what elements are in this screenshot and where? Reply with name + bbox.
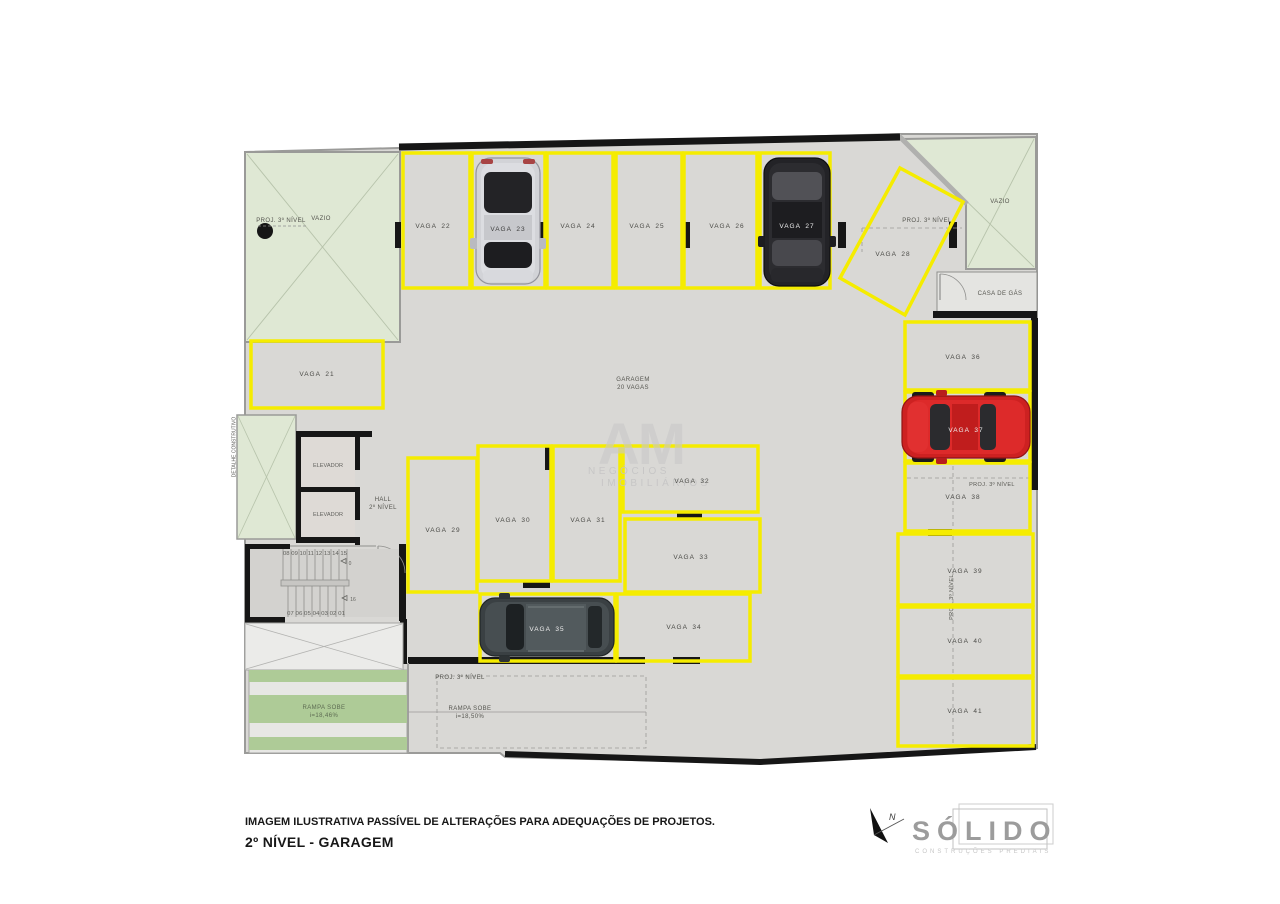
elevator-2-label: ELEVADOR: [313, 512, 343, 518]
space-label: VAGA 32: [674, 478, 709, 485]
space-label: VAGA 21: [299, 371, 334, 378]
space-label: VAGA 25: [629, 223, 664, 230]
proj-3-nivel-label: PROJ. 3º NÍVEL: [902, 217, 952, 224]
space-label: VAGA 36: [945, 354, 980, 361]
space-label: VAGA 22: [415, 223, 450, 230]
garage-subtitle-label: 20 VAGAS: [617, 385, 649, 391]
void-area-left-middle: DETALHE CONSTRUTIVO: [232, 415, 297, 539]
level-title: 2º NÍVEL - GARAGEM: [245, 834, 394, 850]
space-label: VAGA 39: [947, 568, 982, 575]
floor-plan-page: PROJ. 3º NÍVEL VAZIO VAZIO DETALHE CONST…: [0, 0, 1280, 904]
space-label: VAGA 40: [947, 638, 982, 645]
gas-room: CASA DE GÁS: [937, 272, 1037, 312]
space-label: VAGA 35: [529, 626, 564, 633]
hall-label-line1: HALL: [375, 497, 392, 503]
space-label: VAGA 31: [570, 517, 605, 524]
space-label: VAGA 37: [948, 427, 983, 434]
company-subtitle: CONSTRUÇÕES PREDIAIS: [915, 848, 1051, 855]
ramp-left-label-line2: i=18,46%: [310, 713, 339, 719]
disclaimer-text: IMAGEM ILUSTRATIVA PASSÍVEL DE ALTERAÇÕE…: [245, 815, 715, 828]
space-label: VAGA 24: [560, 223, 595, 230]
proj-3-nivel-label: PROJ. 3º NÍVEL: [256, 217, 306, 224]
floor-plan-drawing: PROJ. 3º NÍVEL VAZIO VAZIO DETALHE CONST…: [0, 0, 1280, 904]
stairs-lower-numbers: 07 06 05 04 03 02 01: [287, 611, 345, 617]
vazio-label: VAZIO: [311, 216, 331, 222]
space-label: VAGA 29: [425, 527, 460, 534]
void-area-top-left: PROJ. 3º NÍVEL VAZIO: [245, 152, 400, 342]
hatched-area-bottom-left: [245, 623, 403, 670]
vazio-label: VAZIO: [990, 199, 1010, 205]
north-arrow-icon: [870, 808, 888, 843]
space-label: VAGA 26: [709, 223, 744, 230]
staircase: 08 09 10 11 12 13 14 15 07 06 05 04 03 0…: [250, 549, 399, 617]
casa-de-gas-label: CASA DE GÁS: [978, 290, 1023, 297]
stairs-mark-upper: 0: [349, 561, 352, 567]
car-silver-top-view: [470, 158, 546, 284]
watermark-line1: NEGÓCIOS: [588, 464, 670, 477]
ramp-left-label-line1: RAMPA SOBE: [303, 705, 346, 711]
company-logo: N SÓLIDO CONSTRUÇÕES PREDIAIS: [870, 804, 1058, 855]
ramp-right-label-line1: RAMPA SOBE: [449, 706, 492, 712]
stairs-upper-numbers: 08 09 10 11 12 13 14 15: [283, 551, 347, 557]
proj-3-nivel-label: PROJ. 3º NÍVEL: [969, 481, 1015, 488]
space-label: VAGA 34: [666, 624, 701, 631]
elevator-1-label: ELEVADOR: [313, 463, 343, 469]
detalhe-construtivo-label: DETALHE CONSTRUTIVO: [232, 417, 238, 478]
car-black-top-view: [758, 158, 836, 286]
space-label: VAGA 30: [495, 517, 530, 524]
stairs-mark-lower: 16: [350, 597, 356, 603]
hall-label-line2: 2º NÍVEL: [369, 504, 397, 511]
space-label: VAGA 33: [673, 554, 708, 561]
company-name: SÓLIDO: [912, 815, 1058, 846]
ramp-up-left: RAMPA SOBE i=18,46%: [249, 670, 407, 753]
space-label: VAGA 38: [945, 494, 980, 501]
column-dot: [257, 223, 273, 239]
space-label: VAGA 27: [779, 223, 814, 230]
proj-3-nivel-label: PROJ. 3º NÍVEL: [435, 674, 485, 681]
space-label: VAGA 23: [490, 226, 525, 233]
garage-title-label: GARAGEM: [616, 377, 649, 383]
space-label: VAGA 41: [947, 708, 982, 715]
proj-3-nivel-vertical-label: PROJ. 3º NÍVEL: [948, 574, 955, 620]
space-label: VAGA 28: [875, 251, 910, 258]
ramp-right-label-line2: i=18,50%: [456, 714, 485, 720]
north-label: N: [889, 812, 896, 822]
